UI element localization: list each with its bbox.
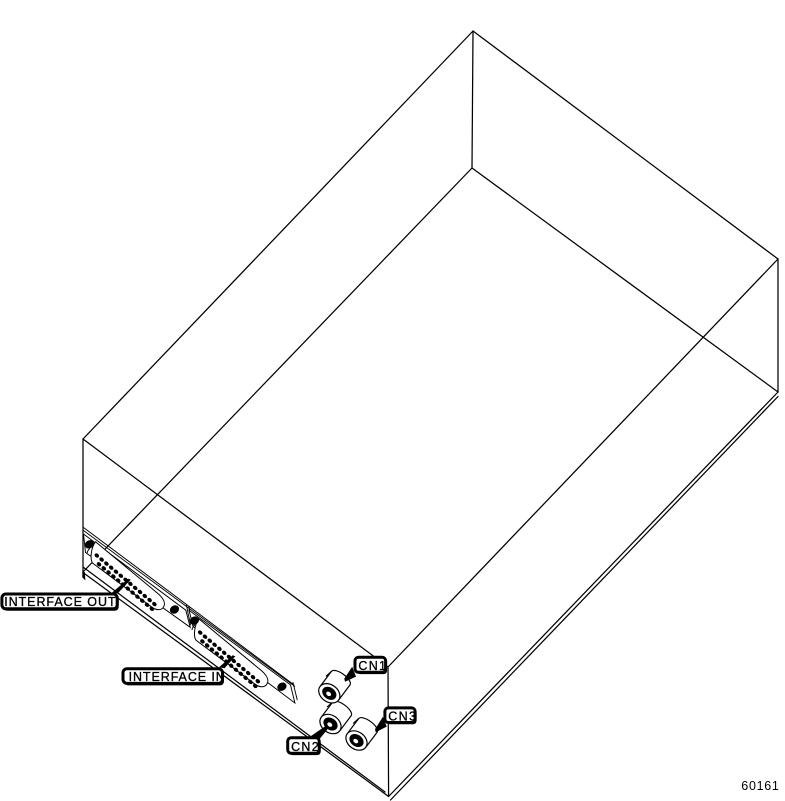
svg-text:INTERFACE OUT: INTERFACE OUT <box>4 595 116 609</box>
svg-text:60161: 60161 <box>741 779 779 793</box>
svg-text:INTERFACE IN: INTERFACE IN <box>129 670 226 684</box>
svg-text:CN2: CN2 <box>291 740 320 754</box>
svg-text:CN3: CN3 <box>388 710 417 724</box>
svg-text:CN1: CN1 <box>358 659 387 673</box>
